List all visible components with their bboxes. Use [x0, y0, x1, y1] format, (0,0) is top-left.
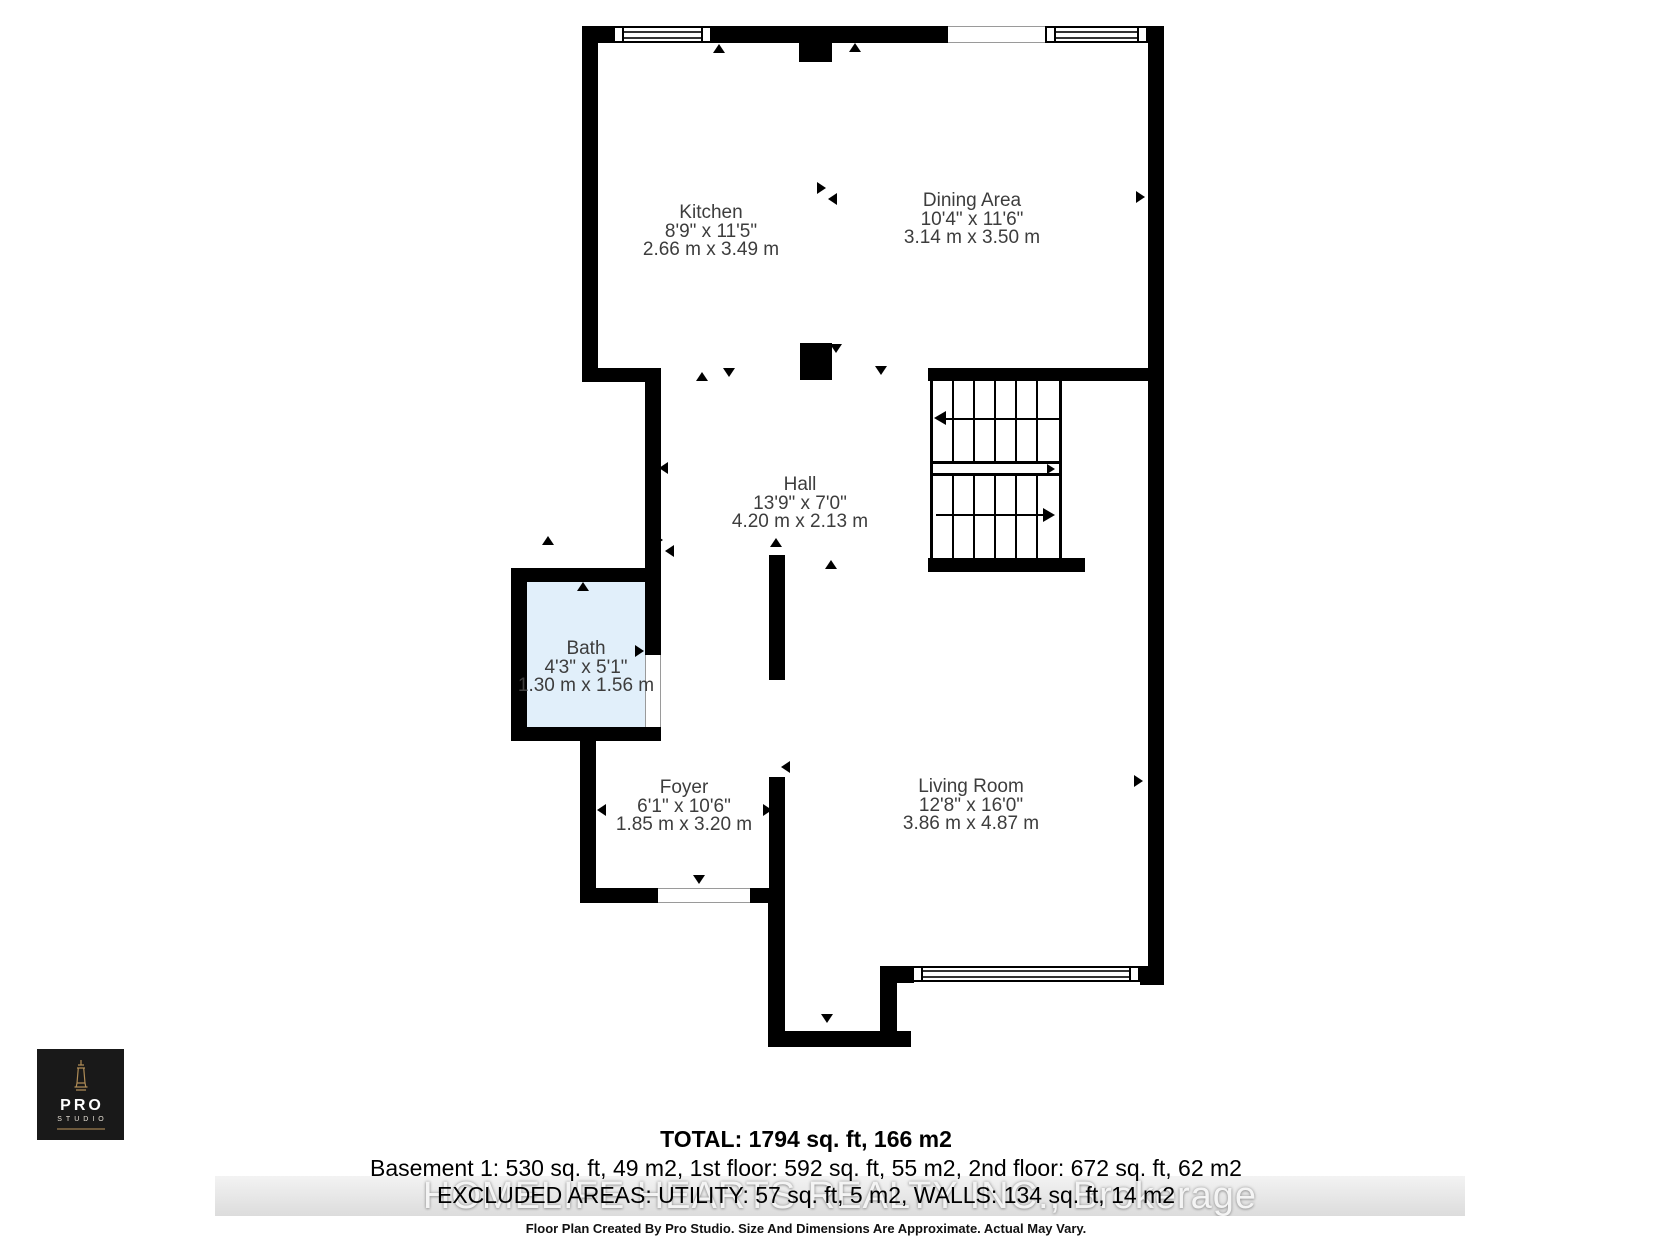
window-pane [1056, 31, 1137, 39]
foyer-entry-door-opening [658, 888, 750, 903]
door-marker-icon [781, 761, 790, 773]
door-marker-icon [1136, 191, 1145, 203]
door-marker-icon [577, 582, 589, 591]
wall-segment [1148, 26, 1164, 985]
stair-landing [933, 461, 1059, 476]
chimney-block [799, 43, 832, 62]
room-dims-metric: 1.85 m x 3.20 m [616, 816, 752, 835]
logo-text-studio: STUDIO [57, 1116, 107, 1124]
window-pane [923, 970, 1129, 978]
wall-segment [645, 368, 661, 655]
stair-arrow-right-icon [1047, 464, 1055, 474]
wall-segment [768, 903, 785, 1047]
logo-fine-line [57, 1128, 105, 1130]
room-dims-metric: 1.30 m x 1.56 m [518, 677, 654, 696]
door-marker-icon [763, 804, 772, 816]
staircase [930, 381, 1062, 558]
disclaimer-text: Floor Plan Created By Pro Studio. Size A… [0, 1221, 1612, 1236]
room-label-dining: Dining Area 10'4" x 11'6" 3.14 m x 3.50 … [904, 192, 1040, 248]
room-name: Kitchen [643, 204, 779, 223]
pro-studio-logo: PRO STUDIO [37, 1049, 124, 1140]
room-name: Bath [518, 640, 654, 659]
room-label-bath: Bath 4'3" x 5'1" 1.30 m x 1.56 m [518, 640, 654, 696]
wall-segment [712, 26, 948, 43]
room-dims-metric: 4.20 m x 2.13 m [732, 513, 868, 532]
door-marker-icon [821, 1014, 833, 1023]
door-marker-icon [1134, 775, 1143, 787]
dining-wall-opening [948, 26, 1045, 43]
wall-segment [769, 777, 785, 903]
wall-segment [580, 888, 658, 903]
excluded-areas-text: EXCLUDED AREAS: UTILITY: 57 sq. ft, 5 m2… [0, 1182, 1612, 1209]
wall-segment [580, 741, 596, 903]
door-marker-icon [696, 372, 708, 381]
room-label-foyer: Foyer 6'1" x 10'6" 1.85 m x 3.20 m [616, 779, 752, 835]
door-marker-icon [665, 545, 674, 557]
wall-segment [768, 1031, 911, 1047]
room-name: Hall [732, 476, 868, 495]
door-marker-icon [770, 538, 782, 547]
door-marker-icon [849, 43, 861, 52]
wall-segment [769, 555, 785, 680]
chimney-block [800, 343, 832, 380]
wall-segment [928, 558, 1085, 572]
window-pane [624, 31, 701, 39]
wall-segment [928, 368, 1148, 381]
building-icon [68, 1059, 94, 1096]
logo-text-pro: PRO [60, 1098, 104, 1114]
stair-arrow-right-icon [1043, 508, 1055, 522]
door-marker-icon [654, 534, 663, 546]
room-dims-metric: 2.66 m x 3.49 m [643, 241, 779, 260]
door-marker-icon [817, 182, 826, 194]
stair-up-arrow-line [945, 418, 1059, 420]
kitchen-window [613, 26, 712, 43]
door-marker-icon [828, 193, 837, 205]
door-marker-icon [584, 199, 593, 211]
door-marker-icon [723, 368, 735, 377]
door-marker-icon [825, 560, 837, 569]
room-name: Dining Area [904, 192, 1040, 211]
floor-breakdown-text: Basement 1: 530 sq. ft, 49 m2, 1st floor… [0, 1155, 1612, 1182]
door-marker-icon [830, 344, 842, 353]
door-marker-icon [542, 536, 554, 545]
room-name: Living Room [903, 778, 1039, 797]
door-marker-icon [693, 875, 705, 884]
door-marker-icon [875, 366, 887, 375]
room-dims-metric: 3.14 m x 3.50 m [904, 229, 1040, 248]
door-marker-icon [597, 804, 606, 816]
living-room-window [912, 966, 1140, 982]
wall-segment [511, 727, 661, 741]
door-marker-icon [659, 462, 668, 474]
room-label-living: Living Room 12'8" x 16'0" 3.86 m x 4.87 … [903, 778, 1039, 834]
room-label-kitchen: Kitchen 8'9" x 11'5" 2.66 m x 3.49 m [643, 204, 779, 260]
dining-window [1045, 26, 1148, 43]
door-marker-icon [713, 44, 725, 53]
stair-down-arrow-line [936, 514, 1046, 516]
wall-segment [511, 568, 661, 582]
room-dims-metric: 3.86 m x 4.87 m [903, 815, 1039, 834]
floor-plan: Kitchen 8'9" x 11'5" 2.66 m x 3.49 m Din… [0, 0, 1680, 1260]
room-label-hall: Hall 13'9" x 7'0" 4.20 m x 2.13 m [732, 476, 868, 532]
total-area-text: TOTAL: 1794 sq. ft, 166 m2 [0, 1126, 1612, 1153]
stair-arrow-left-icon [934, 411, 946, 425]
room-name: Foyer [616, 779, 752, 798]
wall-segment [1140, 966, 1164, 985]
